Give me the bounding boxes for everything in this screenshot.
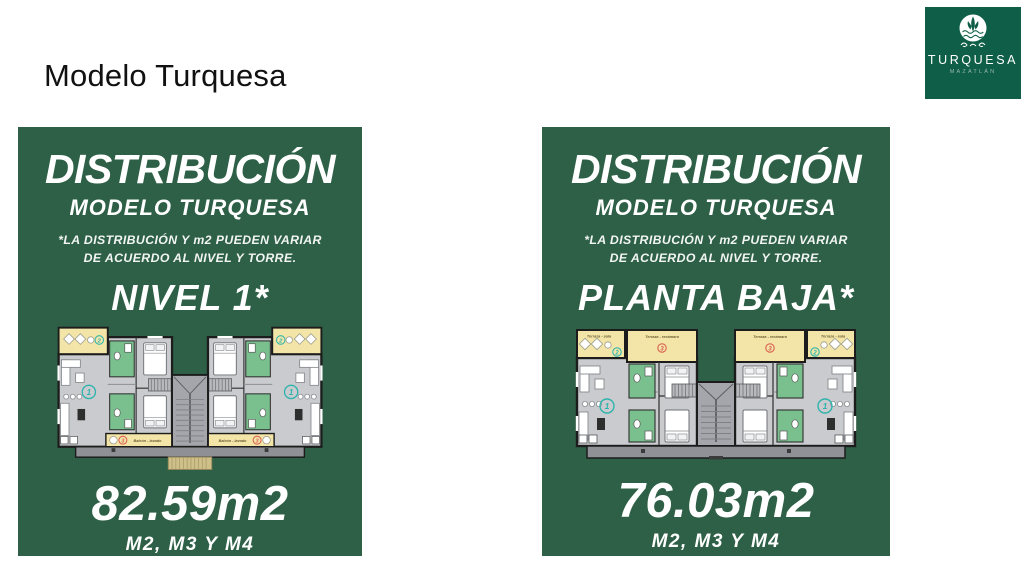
staircase: [697, 382, 735, 446]
unit-number: 1: [289, 387, 294, 396]
unit-number: 1: [87, 387, 92, 396]
card-nivel-1: DISTRIBUCIÓN MODELO TURQUESA *LA DISTRIB…: [18, 127, 362, 556]
terrace-number: 2: [812, 350, 817, 356]
card-subheading: MODELO TURQUESA: [595, 195, 836, 221]
card-heading: DISTRIBUCIÓN: [571, 149, 861, 190]
card-disclaimer: *LA DISTRIBUCIÓN Y m2 PUEDEN VARIAR DE A…: [58, 232, 322, 268]
logo-brand-text: TURQUESA: [928, 53, 1018, 67]
disclaimer-line-2: DE ACUERDO AL NIVEL Y TORRE.: [610, 251, 823, 265]
balcony-label: Balcón - lavado: [134, 439, 163, 443]
entry-steps: [168, 457, 211, 469]
staircase: [172, 375, 208, 447]
unit-number: 1: [605, 401, 610, 411]
level-title: PLANTA BAJA*: [578, 277, 854, 319]
disclaimer-line-1: *LA DISTRIBUCIÓN Y m2 PUEDEN VARIAR: [584, 233, 848, 247]
level-title: NIVEL 1*: [111, 277, 268, 319]
card-heading: DISTRIBUCIÓN: [45, 149, 335, 190]
unit-number: 1: [823, 401, 828, 411]
area-value: 76.03m2: [618, 477, 815, 526]
terrace-label: Terraza - sala: [587, 334, 611, 338]
turquesa-logo: TURQUESA MAZATLÁN: [925, 7, 1021, 99]
page-title: Modelo Turquesa: [44, 58, 287, 94]
agave-emblem-icon: [951, 13, 995, 51]
area-value: 82.59m2: [92, 480, 289, 529]
disclaimer-line-1: *LA DISTRIBUCIÓN Y m2 PUEDEN VARIAR: [58, 233, 322, 247]
floorplan-planta-baja: 1 1 2 2 3 3 Terraza - sala Terraza - sal…: [568, 322, 864, 468]
terrace-label: Terraza - recámara: [753, 335, 787, 339]
disclaimer-line-2: DE ACUERDO AL NIVEL Y TORRE.: [84, 251, 297, 265]
terrace-number: 2: [614, 350, 619, 356]
logo-location-text: MAZATLÁN: [950, 69, 997, 75]
models-label: M2, M3 Y M4: [652, 531, 781, 553]
walkway: [587, 446, 845, 460]
balcony-label: Balcón - lavado: [219, 439, 248, 443]
terrace-label: Terraza - sala: [821, 334, 845, 338]
floorplan-nivel-1: 1 1 2 2 3 3 Balcón - lavado Balcón - lav…: [44, 322, 336, 471]
terrace-label: Terraza - recámara: [645, 335, 679, 339]
base-platform: [76, 446, 305, 456]
models-label: M2, M3 Y M4: [126, 534, 255, 556]
card-planta-baja: DISTRIBUCIÓN MODELO TURQUESA *LA DISTRIB…: [542, 127, 890, 556]
card-subheading: MODELO TURQUESA: [69, 195, 310, 221]
card-disclaimer: *LA DISTRIBUCIÓN Y m2 PUEDEN VARIAR DE A…: [584, 232, 848, 268]
